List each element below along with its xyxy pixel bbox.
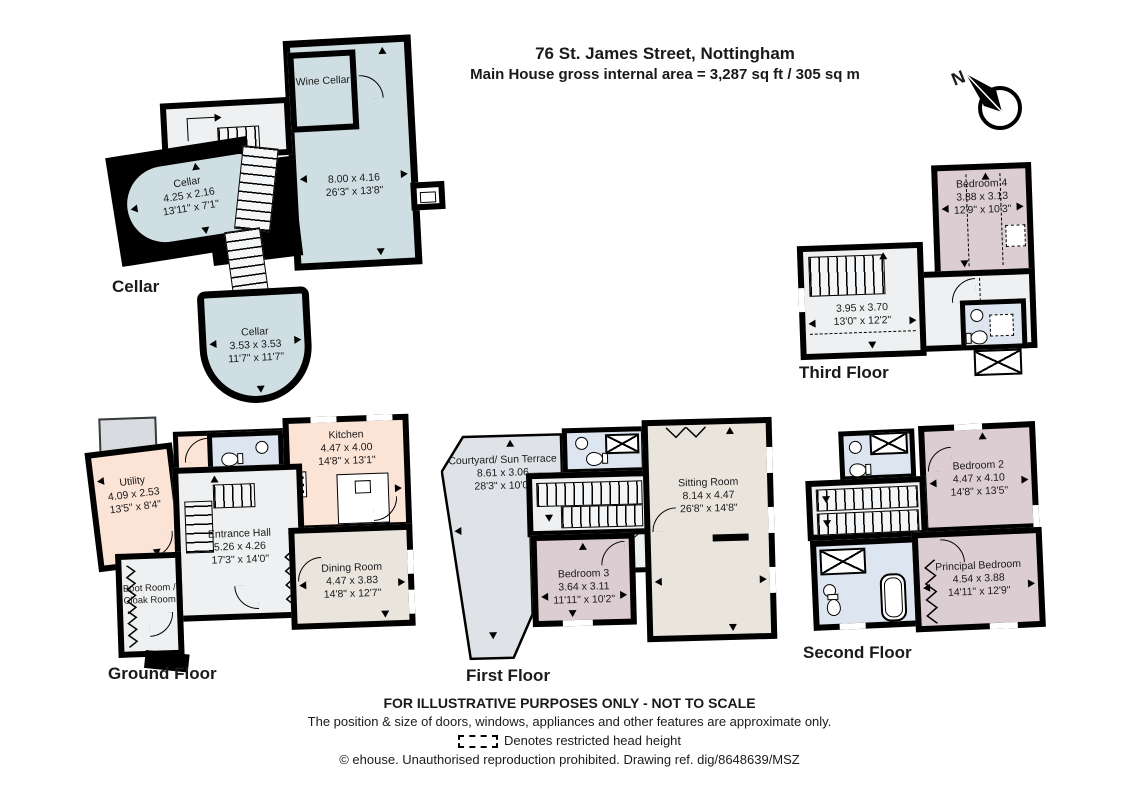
wall-marker [300, 175, 307, 183]
wall-marker [210, 475, 218, 482]
first-landing [526, 470, 652, 537]
toilet-icon [221, 452, 238, 467]
wall-marker [377, 248, 385, 255]
disclaimer-block: FOR ILLUSTRATIVE PURPOSES ONLY - NOT TO … [0, 693, 1139, 770]
wall-marker [569, 610, 577, 617]
wall-marker [378, 47, 386, 54]
door-arc [297, 557, 322, 582]
window [954, 423, 982, 430]
stairs [213, 483, 256, 508]
room-dim-imperial: 11'11" x 10'2" [538, 592, 630, 607]
door-arc [927, 447, 952, 472]
restricted-head-height-line [810, 330, 916, 335]
disclaimer-line3-text: Denotes restricted head height [504, 733, 681, 748]
sink-icon [970, 309, 983, 322]
toilet-icon [970, 330, 987, 345]
cellar-floor-label: Cellar [112, 277, 159, 297]
window [798, 288, 805, 312]
island-sink [355, 480, 371, 494]
wall-marker [655, 578, 662, 586]
sink-icon [849, 441, 863, 455]
wall-marker [579, 543, 587, 550]
second-floor-plan: Bedroom 2 4.47 x 4.10 14'8" x 13'5" [793, 413, 1055, 669]
wall-marker [1021, 475, 1028, 483]
boot-room: Boot Room / Cloak Room [115, 552, 185, 658]
window [1033, 505, 1040, 527]
dining-room: Dining Room 4.47 x 3.83 14'8" x 12'7" [288, 524, 415, 630]
sink-icon [575, 437, 588, 450]
compass-icon [952, 64, 1038, 144]
window [366, 414, 392, 421]
stair-arrow-head [823, 520, 831, 527]
stair-arrow-head [822, 496, 830, 503]
third-floor-label: Third Floor [799, 363, 889, 383]
toilet-icon [826, 599, 841, 617]
door-arc [373, 496, 398, 521]
cellar-window-box [410, 181, 445, 211]
wall-marker [257, 386, 265, 393]
window [766, 447, 773, 473]
room-dim-imperial: 17'3" x 14'0" [181, 551, 299, 568]
wall-marker [808, 320, 815, 328]
window [990, 622, 1018, 629]
furniture [1005, 224, 1026, 247]
toilet-icon [586, 452, 603, 466]
window [310, 416, 336, 423]
room-dim-imperial: 12'9" x 10'3" [938, 202, 1026, 218]
wall-marker [454, 527, 461, 535]
wall-marker [729, 624, 737, 631]
wall-marker [909, 316, 916, 324]
window [408, 590, 415, 614]
wall-marker [620, 591, 627, 599]
wall-marker [868, 342, 876, 349]
restricted-head-height-key-icon [458, 735, 498, 748]
wall-marker [299, 581, 306, 589]
bedroom3-room: Bedroom 3 3.64 x 3.11 11'11" x 10'2" [531, 532, 637, 627]
wall-marker [381, 610, 389, 617]
stairs [817, 509, 920, 535]
shower-icon [974, 348, 1023, 376]
first-bathroom [562, 426, 647, 474]
wall-marker [97, 477, 105, 486]
room-dim-imperial: 14'8" x 13'1" [290, 452, 404, 469]
wall-marker [489, 632, 497, 639]
third-bathroom [960, 298, 1028, 350]
wall-marker [929, 479, 936, 487]
bathtub-icon [879, 573, 907, 622]
door-arc [234, 585, 259, 610]
floorplan-sheet: 76 St. James Street, Nottingham Main Hou… [0, 0, 1139, 797]
wall-marker [760, 575, 767, 583]
wall-marker [726, 427, 734, 434]
window-bay-marks [666, 427, 706, 440]
sink-icon [255, 441, 268, 454]
door-arc [184, 438, 209, 463]
door-arc [149, 612, 174, 637]
second-bathroom-bottom [810, 536, 922, 631]
wall-marker [398, 578, 405, 586]
wall-marker [960, 260, 968, 267]
wall-marker [923, 584, 930, 592]
room-dim-imperial: 14'8" x 12'7" [296, 585, 408, 602]
second-bathroom-top [838, 428, 916, 481]
window [768, 507, 775, 533]
first-floor-label: First Floor [466, 666, 550, 686]
cellar-plan: 8.00 x 4.16 26'3" x 13'8" Wine Cellar [78, 21, 462, 420]
disclaimer-line2: The position & size of doors, windows, a… [0, 713, 1139, 732]
bedroom2-room: Bedroom 2 4.47 x 4.10 14'8" x 13'5" [918, 421, 1040, 534]
wall-marker [395, 484, 402, 492]
cloak-hooks-zigzag [124, 565, 138, 615]
stairs [816, 485, 919, 511]
window [563, 620, 593, 627]
wine-cellar-room: Wine Cellar [287, 49, 359, 132]
wall-marker [294, 336, 301, 344]
wall-marker [1016, 202, 1023, 210]
wall-marker [506, 440, 514, 447]
wall-marker [201, 226, 210, 234]
wall-marker [941, 205, 948, 213]
window [407, 550, 414, 574]
door-arc [940, 538, 965, 563]
wall-marker [981, 172, 989, 179]
stairs [808, 254, 885, 297]
stairs [561, 504, 644, 528]
second-floor-label: Second Floor [803, 643, 912, 663]
first-floor-plan: Courtyard/ Sun Terrace 8.61 x 3.06 28'3"… [439, 409, 791, 696]
wall-marker [541, 593, 548, 601]
entrance-hall-room: Entrance Hall 5.26 x 4.26 17'3" x 14'0" [172, 463, 307, 621]
cloak-hooks-zigzag [126, 611, 139, 647]
wall-marker [1028, 579, 1035, 587]
disclaimer-line3: Denotes restricted head height [0, 732, 1139, 751]
wall-marker [130, 205, 138, 214]
shower-icon [869, 432, 908, 456]
wall-marker [978, 432, 986, 439]
window [840, 623, 866, 630]
shower-icon [819, 548, 866, 576]
disclaimer-line1: FOR ILLUSTRATIVE PURPOSES ONLY - NOT TO … [0, 693, 1139, 713]
second-landing [805, 476, 928, 541]
third-landing: 3.95 x 3.70 13'0" x 12'2" [797, 242, 927, 360]
door-arc [601, 541, 626, 566]
fireplace [713, 534, 749, 542]
wall-marker [191, 162, 200, 170]
cellar-round-room: Cellar 3.53 x 3.53 11'7" x 11'7" [197, 286, 315, 406]
wall-marker [209, 340, 216, 348]
stair-arrow-head [545, 515, 553, 522]
cabinet [989, 314, 1014, 337]
toilet-icon [849, 463, 867, 478]
disclaimer-line4: © ehouse. Unauthorised reproduction proh… [0, 751, 1139, 770]
stairs [536, 480, 643, 507]
room-name: Wine Cellar [295, 74, 352, 90]
principal-bedroom-room: Principal Bedroom 4.54 x 3.88 14'11" x 1… [912, 527, 1046, 633]
shower-icon [605, 433, 640, 454]
ground-floor-label: Ground Floor [108, 664, 217, 684]
room-dim-imperial: 13'0" x 12'2" [805, 313, 919, 330]
window [769, 567, 776, 593]
sitting-room: Sitting Room 8.14 x 4.47 26'8" x 14'8" [642, 417, 778, 642]
ground-floor-plan: Utility 4.09 x 2.53 13'5" x 8'4" Kitchen… [80, 397, 438, 704]
bedroom4-room: Bedroom 4 3.88 x 3.13 12'9" x 10'3" [931, 162, 1035, 277]
stair-arrow-head [214, 113, 221, 121]
wall-marker [879, 252, 887, 259]
wall-marker [401, 170, 408, 178]
